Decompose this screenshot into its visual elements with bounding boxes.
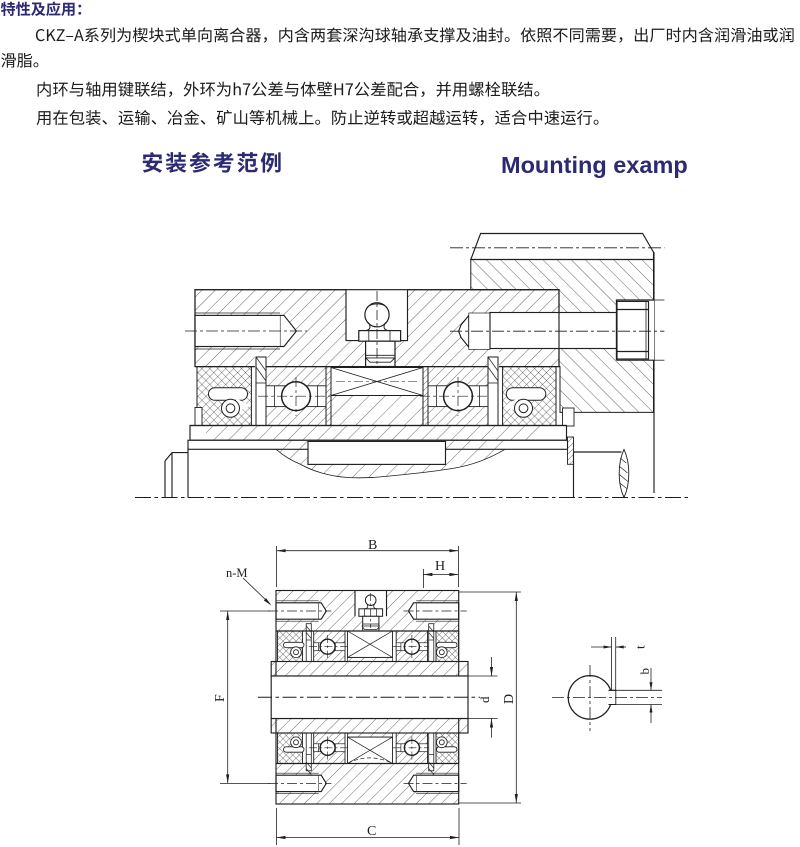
svg-text:t: t (633, 645, 648, 649)
svg-text:H: H (435, 559, 445, 574)
svg-text:b: b (637, 668, 652, 675)
svg-text:F: F (213, 694, 228, 702)
svg-text:B: B (368, 538, 377, 553)
svg-text:n-M: n-M (226, 566, 248, 580)
svg-text:D: D (502, 694, 517, 704)
svg-text:d: d (477, 696, 492, 703)
svg-text:C: C (367, 824, 376, 839)
